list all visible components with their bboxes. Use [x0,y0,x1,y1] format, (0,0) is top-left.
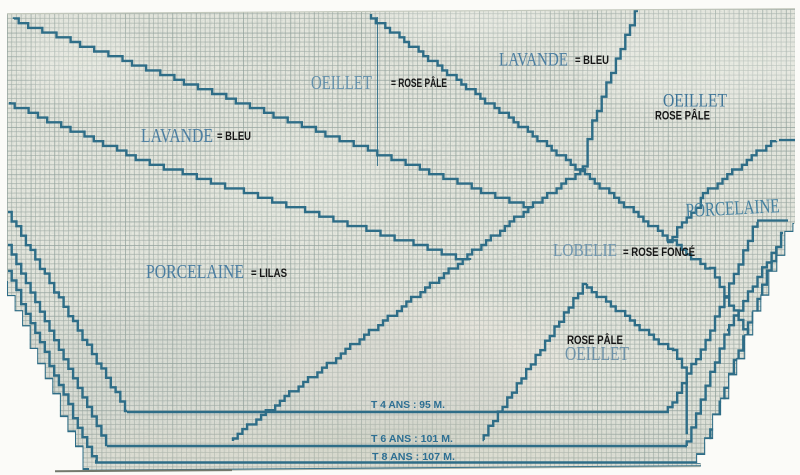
svg-text:T 4 ANS : 95 M.: T 4 ANS : 95 M. [371,399,445,411]
svg-text:= ROSE PÂLE: = ROSE PÂLE [391,75,447,90]
svg-text:T 6 ANS : 101 M.: T 6 ANS : 101 M. [371,433,453,445]
svg-text:PORCELAINE: PORCELAINE [146,262,244,283]
svg-text:OEILLET: OEILLET [663,91,727,112]
svg-text:LOBELIE: LOBELIE [553,240,617,260]
svg-text:ROSE PÂLE: ROSE PÂLE [655,110,710,123]
svg-text:LAVANDE: LAVANDE [499,50,568,71]
svg-text:T 8 ANS : 107 M.: T 8 ANS : 107 M. [372,451,455,463]
svg-text:OEILLET: OEILLET [311,72,372,94]
svg-text:= ROSE FONCÉ: = ROSE FONCÉ [623,246,695,259]
svg-text:= BLEU: = BLEU [217,131,251,143]
svg-text:= BLEU: = BLEU [575,55,609,67]
svg-text:OEILLET: OEILLET [565,344,629,365]
svg-text:= LILAS: = LILAS [251,268,287,280]
svg-text:LAVANDE: LAVANDE [141,126,213,147]
